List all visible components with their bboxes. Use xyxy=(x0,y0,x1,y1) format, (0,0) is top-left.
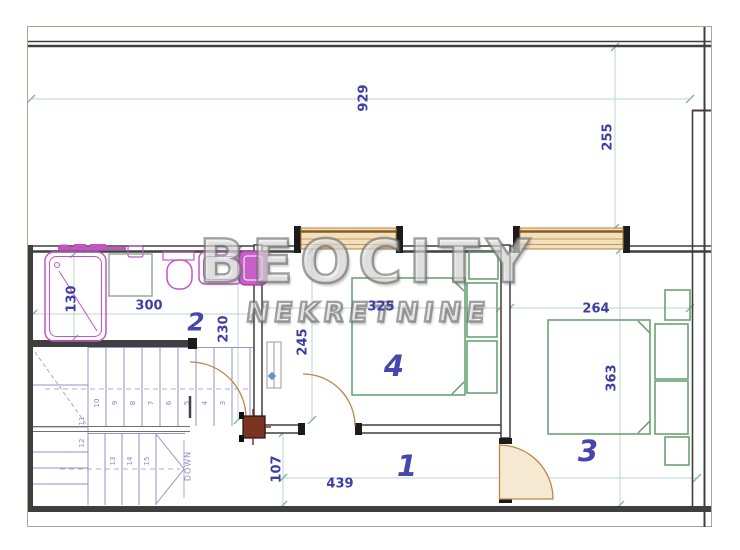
vent-symbol xyxy=(268,372,276,380)
tread-number: 8 xyxy=(129,401,137,405)
dim-room3-width: 264 xyxy=(582,302,609,317)
tread-number: 10 xyxy=(93,399,101,408)
nightstand-room3 xyxy=(665,437,689,465)
tread-number: 11 xyxy=(78,417,86,426)
dim-room3-depth: 363 xyxy=(605,364,620,391)
dim-terrace-depth: 255 xyxy=(601,123,616,150)
door-room4-arc xyxy=(303,374,355,426)
tread-number: 4 xyxy=(201,401,209,405)
room-number-hall: 1 xyxy=(397,449,417,483)
dim-bathtub-length: 130 xyxy=(65,285,80,312)
pillow xyxy=(655,324,688,379)
tread-number: 5 xyxy=(183,401,191,405)
dim-hall-length: 439 xyxy=(326,477,353,492)
pillow xyxy=(655,381,688,434)
stairs-down-label: DOWN xyxy=(184,451,193,481)
tread-number: 3 xyxy=(219,401,227,405)
room-number-bedroom3: 3 xyxy=(578,434,598,468)
dim-hall-width: 107 xyxy=(270,455,285,482)
tread-number: 9 xyxy=(111,401,119,405)
dim-bathroom-width: 300 xyxy=(135,299,162,314)
room-number-bedroom4: 4 xyxy=(384,349,404,383)
tread-number: 12 xyxy=(78,439,86,448)
bed-room3 xyxy=(548,320,650,434)
pillow xyxy=(467,341,497,393)
tread-number: 7 xyxy=(147,401,155,405)
dim-bathroom-depth: 230 xyxy=(217,315,232,342)
toilet-bowl xyxy=(167,260,192,289)
shelf-room3 xyxy=(665,290,690,320)
window-post xyxy=(623,226,630,253)
watermark-title: BEOCITY xyxy=(199,227,536,297)
washing-machine xyxy=(109,254,152,296)
dim-room4-width: 325 xyxy=(367,300,394,315)
floor-plan: BEOCITY NEKRETNINE 929 255 300 130 230 2… xyxy=(0,0,740,550)
dim-room4-depth: 245 xyxy=(296,328,311,355)
radiator xyxy=(267,342,281,388)
room-number-bathroom: 2 xyxy=(187,308,204,337)
toilet-tank xyxy=(163,252,194,260)
door-room3-arc xyxy=(500,445,554,499)
tread-number: 15 xyxy=(143,457,151,466)
dim-terrace-width: 929 xyxy=(357,84,372,111)
tread-number: 6 xyxy=(165,401,173,405)
tread-number: 13 xyxy=(109,457,117,466)
tread-number: 14 xyxy=(126,457,134,466)
